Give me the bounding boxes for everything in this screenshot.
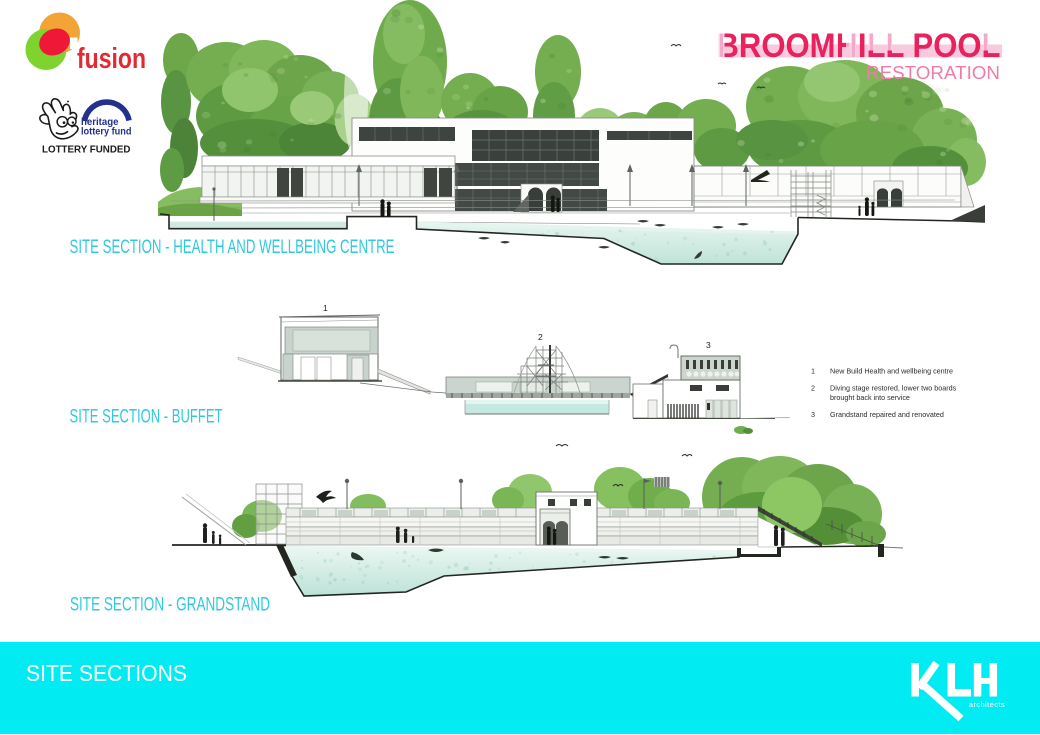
svg-text:lottery fund: lottery fund	[81, 127, 132, 138]
svg-text:1: 1	[811, 367, 815, 376]
svg-text:Grandstand repaired and renova: Grandstand repaired and renovated	[830, 410, 944, 419]
svg-text:BROOMHILL POOL: BROOMHILL POOL	[717, 27, 1001, 65]
svg-text:LOTTERY FUNDED: LOTTERY FUNDED	[42, 144, 131, 156]
svg-text:3: 3	[811, 410, 815, 419]
svg-text:SITE SECTION - HEALTH AND WELL: SITE SECTION - HEALTH AND WELLBEING CENT…	[70, 237, 395, 258]
svg-text:fusion: fusion	[77, 43, 146, 75]
svg-text:2: 2	[811, 384, 815, 393]
svg-text:RESTORATION: RESTORATION	[866, 63, 1000, 83]
svg-text:Diving stage restored, lower t: Diving stage restored, lower two boards	[830, 384, 957, 393]
svg-text:brought back into service: brought back into service	[830, 393, 910, 402]
svg-text:SITE SECTION - BUFFET: SITE SECTION - BUFFET	[70, 407, 223, 428]
svg-text:SITE SECTIONS: SITE SECTIONS	[26, 660, 187, 686]
svg-text:SITE SECTION - GRANDSTAND: SITE SECTION - GRANDSTAND	[70, 595, 270, 616]
svg-text:New Build Health and wellbeing: New Build Health and wellbeing centre	[830, 367, 953, 376]
svg-text:3: 3	[706, 340, 711, 350]
svg-text:architects: architects	[969, 700, 1005, 709]
svg-text:1: 1	[323, 303, 328, 313]
svg-text:2: 2	[538, 332, 543, 342]
